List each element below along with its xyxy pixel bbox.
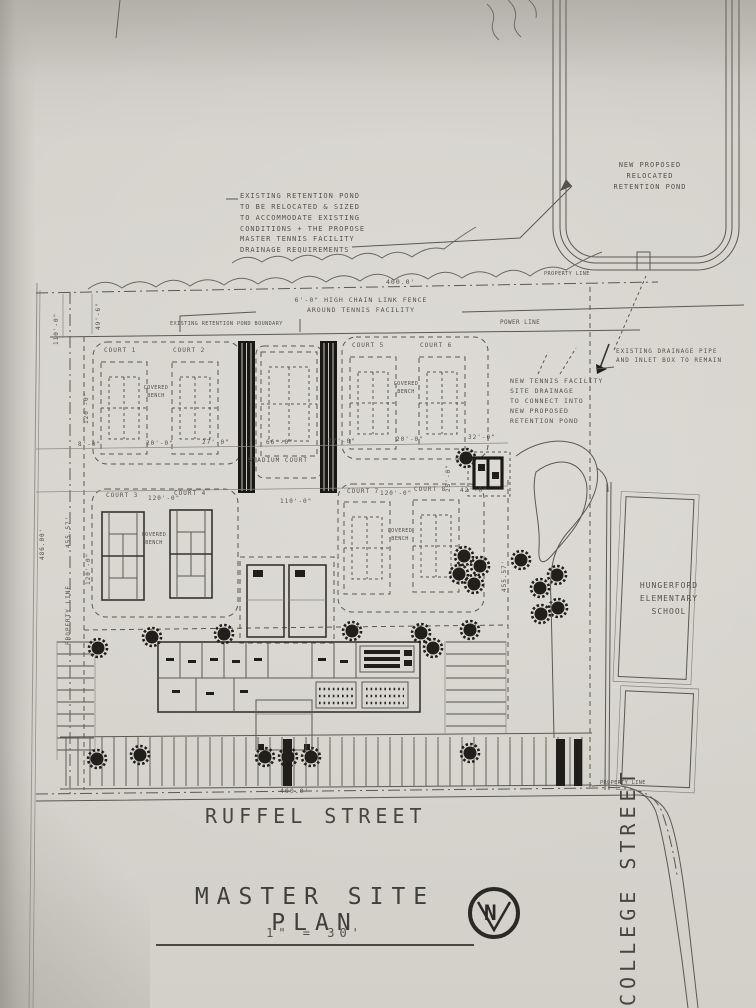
covered-bench-label-3: COVERED BENCH [141, 532, 167, 548]
note-fence: 6'-0" HIGH CHAIN LINK FENCE AROUND TENNI… [256, 296, 466, 316]
dim-left-455: 455.57' [64, 516, 73, 548]
school-label: HUNGERFORD ELEMENTARY SCHOOL [626, 580, 712, 618]
courts-row-2 [36, 480, 508, 620]
courts-row-1 [36, 337, 508, 493]
dim-42: 42'-0" [460, 486, 488, 495]
dim-left-49: 49'-6" [94, 302, 103, 330]
pond-boundary-label: EXISTING RETENTION POND BOUNDARY [170, 321, 283, 329]
dim-left-486: 486.00' [38, 528, 47, 560]
covered-bench-label-4: COVERED BENCH [387, 528, 413, 544]
dim-32: 32'-0" [468, 433, 496, 442]
dim-120a: 120'-0" [148, 494, 180, 503]
power-line-label: POWER LINE [500, 318, 540, 327]
dim-right-455: 455.57' [500, 560, 509, 592]
driveway-loop [516, 441, 608, 738]
court-6-label: COURT 6 [420, 341, 452, 350]
photo-shadow-bottom-left [0, 708, 150, 1008]
north-arrow-letter: N [484, 901, 497, 925]
dim-66: 66'-0" [266, 438, 294, 447]
ruffel-street-label: RUFFEL STREET [205, 804, 427, 828]
dim-row1-height: 120'-0" [82, 392, 91, 424]
dim-27a: 27'-0" [202, 438, 230, 447]
note-site-drainage: NEW TENNIS FACILITY SITE DRAINAGE TO CON… [510, 376, 603, 426]
court-5-label: COURT 5 [352, 341, 384, 350]
dim-row2-height: 120'-0" [84, 553, 93, 585]
dim-20a: 20'-0" [146, 439, 174, 448]
property-line-left-label: PROPERTY LINE [64, 585, 73, 645]
court-8-label: COURT 8 [414, 485, 446, 494]
college-street-label: COLLEGE STREET [616, 767, 640, 1006]
plan-scale: 1" = 30' [156, 926, 474, 940]
covered-bench-label-2: COVERED BENCH [393, 381, 419, 397]
photo-shadow-top [0, 0, 756, 80]
covered-bench-label-1: COVERED BENCH [143, 385, 169, 401]
dim-20b: 20'-0" [396, 435, 424, 444]
dim-8: 8'-0" [78, 440, 101, 449]
court-3-label: COURT 3 [106, 491, 138, 500]
stadium-court-label: STADIUM COURT [248, 456, 308, 465]
dim-bottom-width: 400.0' [280, 787, 309, 797]
court-1-label: COURT 1 [104, 346, 136, 355]
property-line-top-label: PROPERTY LINE [544, 271, 590, 279]
dim-110: 110'-0" [280, 497, 312, 506]
dim-120b: 120'-0" [380, 489, 412, 498]
school-buildings [608, 491, 707, 792]
site-plan-sheet: EXISTING RETENTION POND TO BE RELOCATED … [0, 0, 756, 1008]
dim-left-110: 110'-0" [52, 313, 61, 345]
note-existing-pond: EXISTING RETENTION POND TO BE RELOCATED … [240, 191, 365, 256]
dim-top-width: 400.0' [386, 278, 415, 288]
note-drainage-pipe: EXISTING DRAINAGE PIPE AND INLET BOX TO … [616, 347, 722, 365]
dim-27b: 27'-0" [328, 437, 356, 446]
note-new-pond: NEW PROPOSED RELOCATED RETENTION POND [588, 160, 712, 193]
court-2-label: COURT 2 [173, 346, 205, 355]
court-7-label: COURT 7 [347, 487, 379, 496]
